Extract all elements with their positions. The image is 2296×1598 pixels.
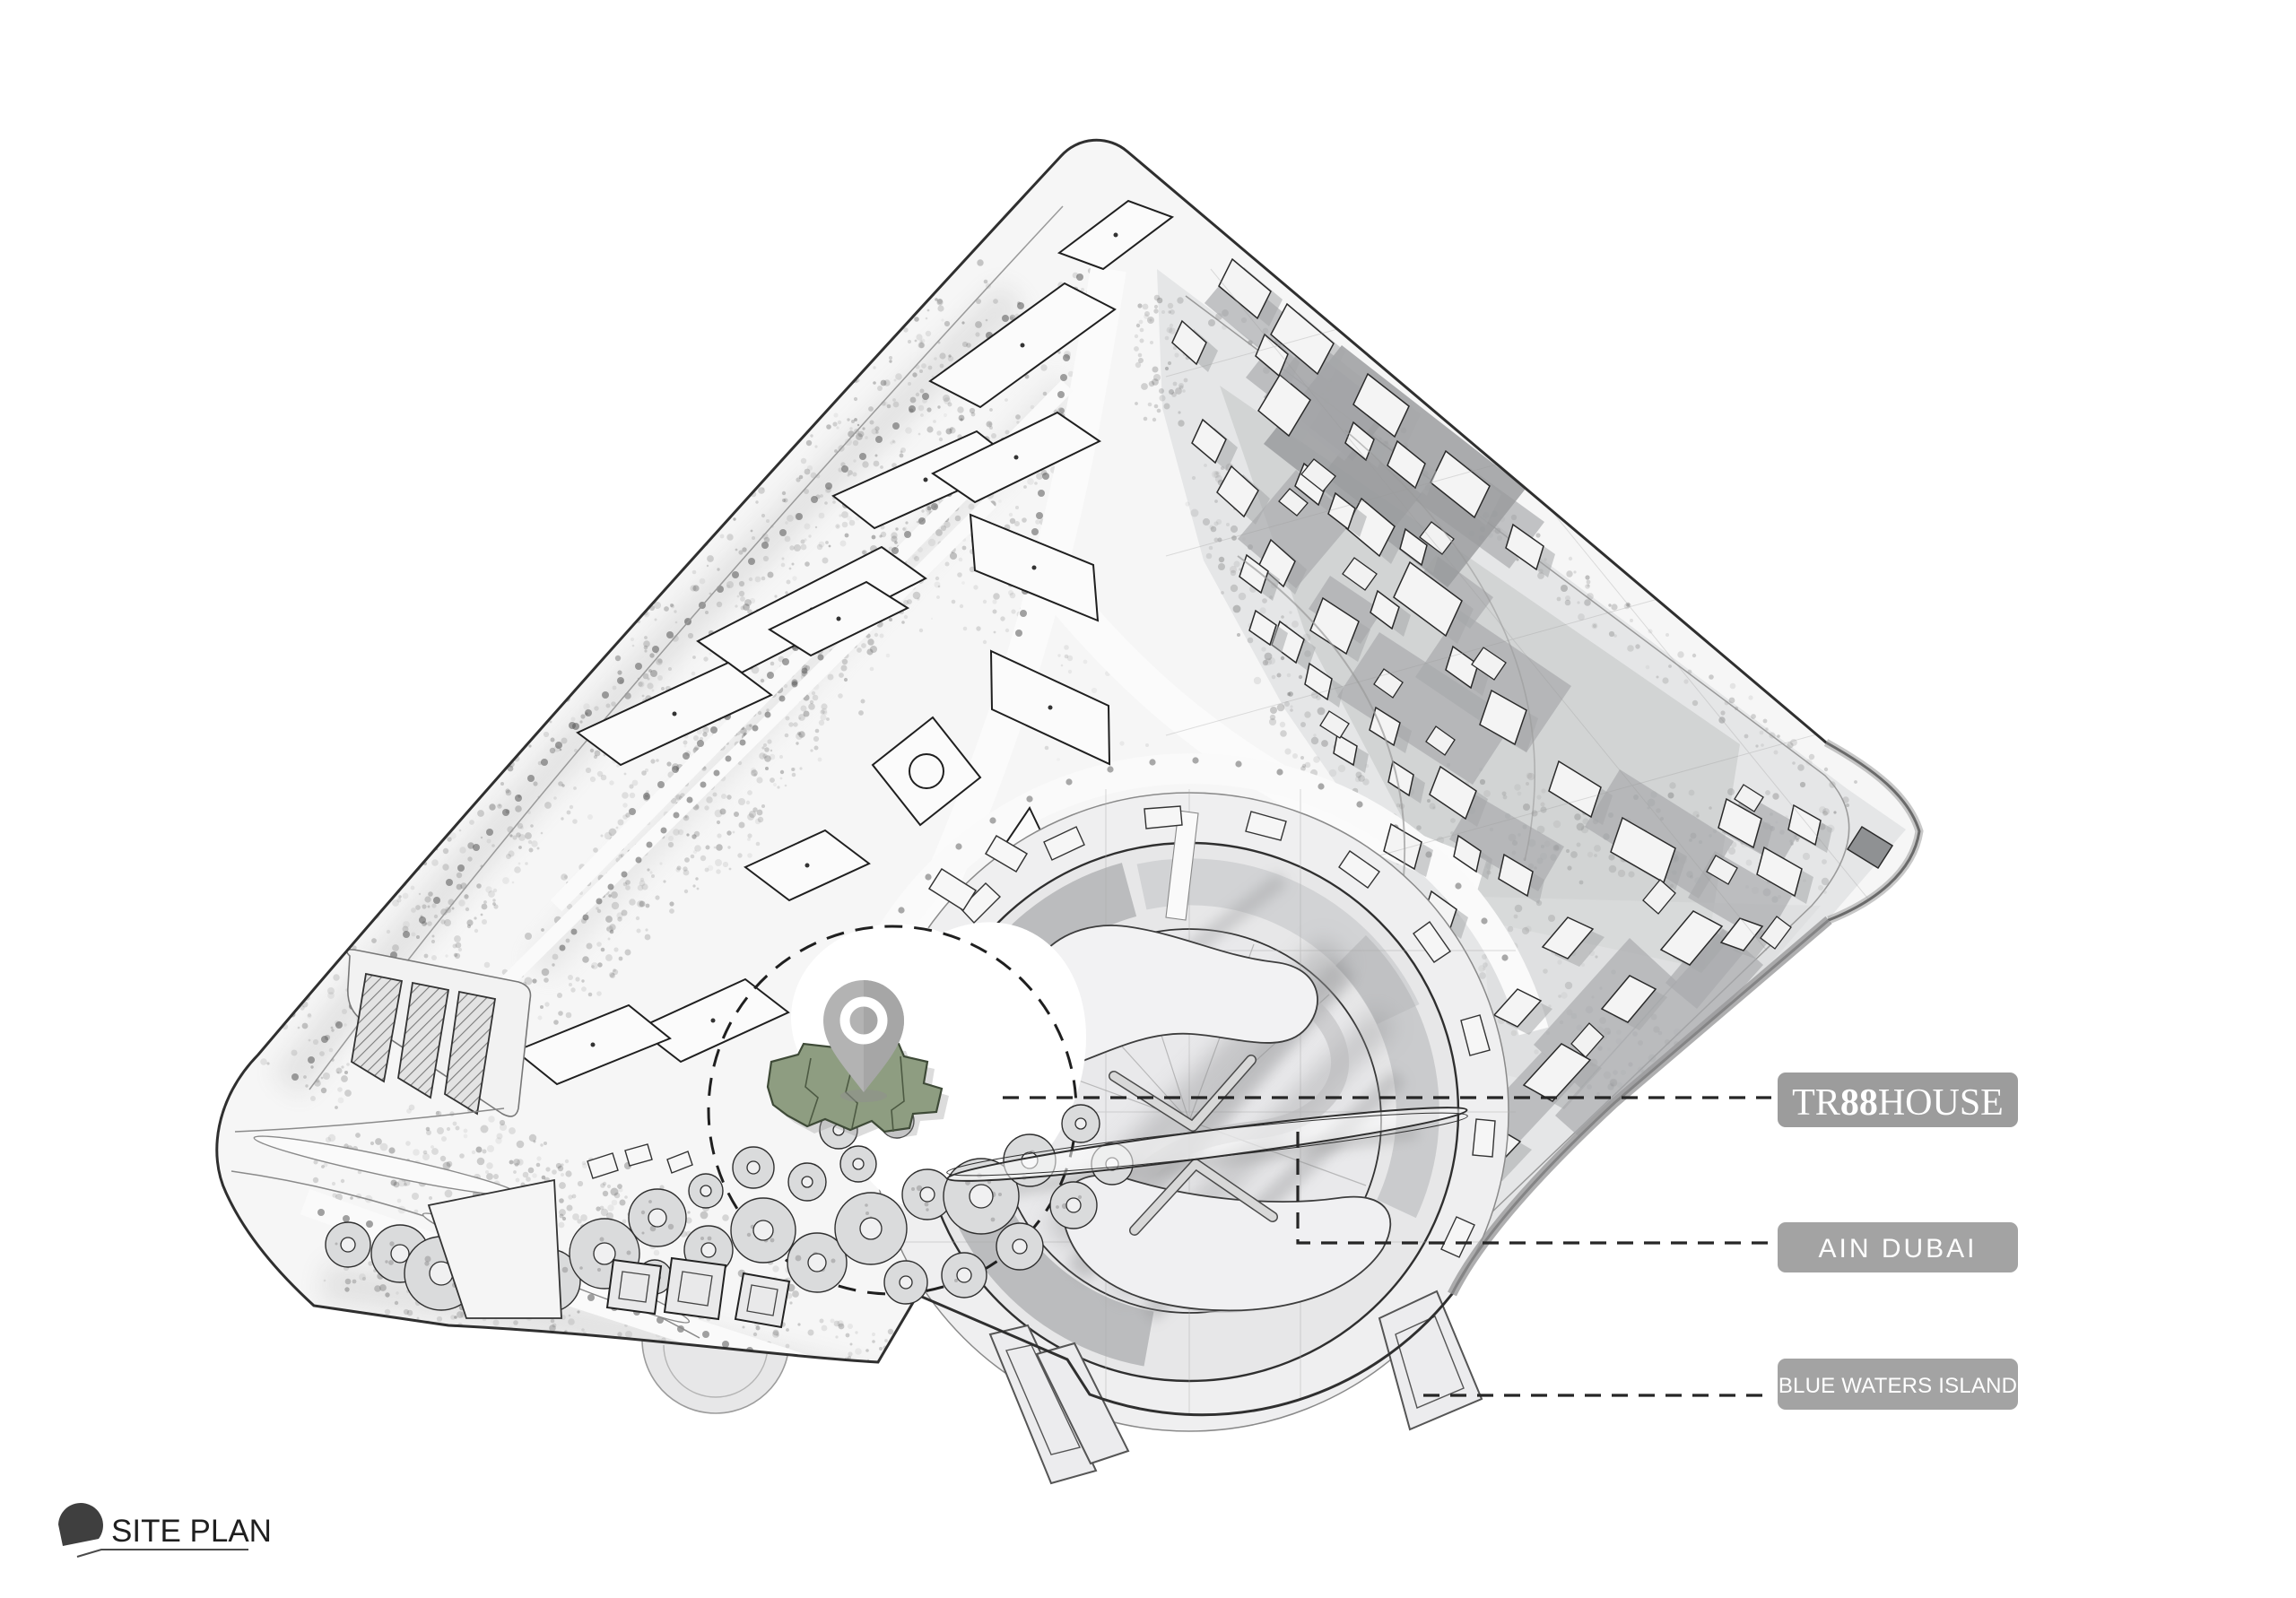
- svg-text:BLUE WATERS ISLAND: BLUE WATERS ISLAND: [1779, 1374, 2017, 1398]
- svg-text:TR88HOUSE: TR88HOUSE: [1792, 1082, 2004, 1124]
- svg-text:AIN DUBAI: AIN DUBAI: [1818, 1234, 1977, 1264]
- svg-text:SITE PLAN: SITE PLAN: [111, 1514, 272, 1549]
